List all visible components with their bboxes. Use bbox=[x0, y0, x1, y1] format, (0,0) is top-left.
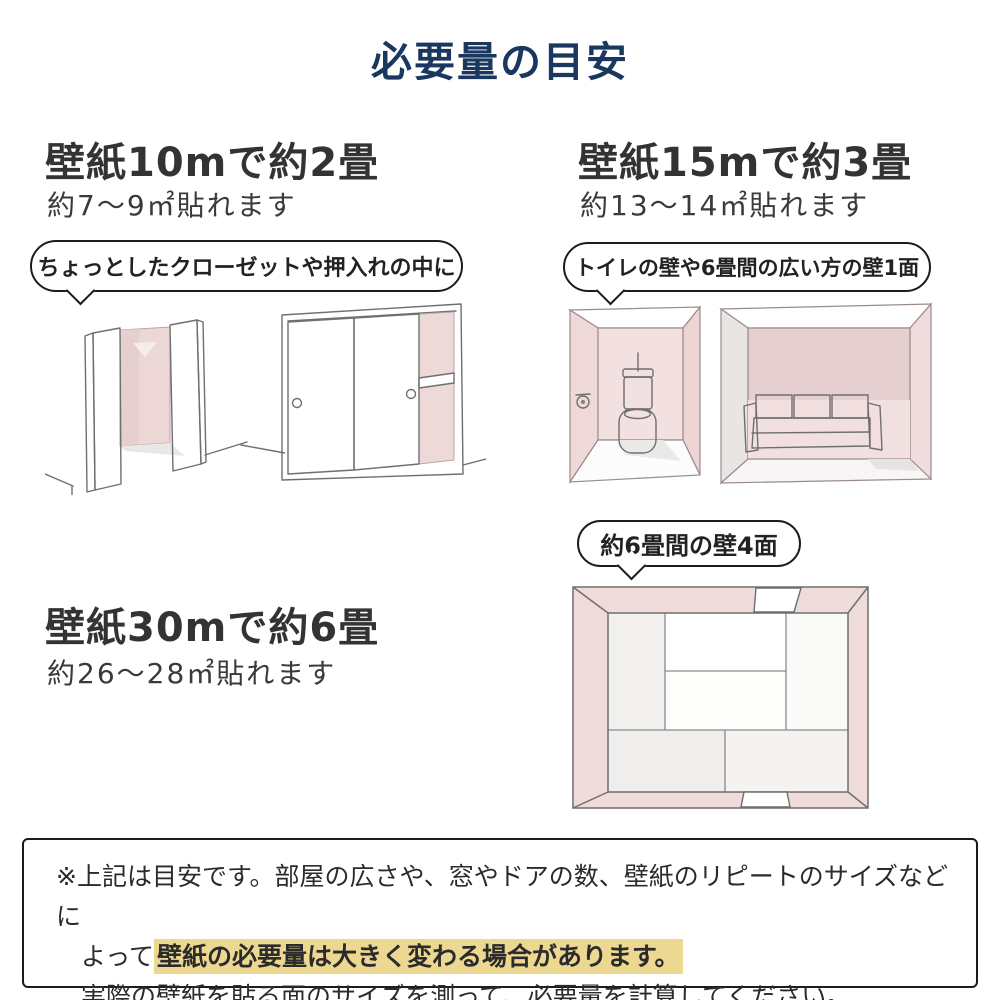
sliding-door-closet-sketch bbox=[278, 303, 486, 493]
subheading-30m: 約26〜28㎡貼れます bbox=[47, 652, 336, 692]
wallpaper-amount-guide: 必要量の目安 壁紙10mで約2畳 約7〜9㎡貼れます ちょっとしたクローゼットや… bbox=[0, 0, 1000, 1000]
six-tatami-room-top-view-sketch bbox=[563, 578, 888, 816]
bubble-30m: 約6畳間の壁4面 bbox=[577, 520, 801, 567]
note-box: ※上記は目安です。部屋の広さや、窓やドアの数、壁紙のリピートのサイズなどに よっ… bbox=[22, 838, 978, 988]
bubble-15m: トイレの壁や6畳間の広い方の壁1面 bbox=[563, 242, 931, 292]
note-line-2: よって壁紙の必要量は大きく変わる場合があります。 bbox=[56, 937, 956, 977]
note-line-1: ※上記は目安です。部屋の広さや、窓やドアの数、壁紙のリピートのサイズなどに bbox=[56, 857, 956, 937]
toilet-room-sketch bbox=[563, 303, 707, 489]
heading-15m: 壁紙15mで約3畳 bbox=[578, 130, 912, 188]
heading-30m: 壁紙30mで約6畳 bbox=[45, 595, 379, 653]
heading-10m: 壁紙10mで約2畳 bbox=[45, 130, 379, 188]
open-closet-sketch bbox=[45, 303, 285, 495]
note-line-3: 実際の壁紙を貼る面のサイズを測って、必要量を計算してください。 bbox=[56, 977, 956, 1000]
living-room-sofa-sketch bbox=[718, 300, 938, 490]
subheading-10m: 約7〜9㎡貼れます bbox=[47, 184, 297, 224]
note-line-2-prefix: よって bbox=[81, 942, 154, 971]
page-title: 必要量の目安 bbox=[0, 28, 1000, 88]
bubble-15m-label: トイレの壁や6畳間の広い方の壁1面 bbox=[575, 252, 919, 282]
bubble-10m: ちょっとしたクローゼットや押入れの中に bbox=[30, 240, 463, 292]
note-highlight: 壁紙の必要量は大きく変わる場合があります。 bbox=[154, 939, 683, 974]
bubble-10m-label: ちょっとしたクローゼットや押入れの中に bbox=[37, 250, 455, 282]
subheading-15m: 約13〜14㎡貼れます bbox=[580, 184, 869, 224]
